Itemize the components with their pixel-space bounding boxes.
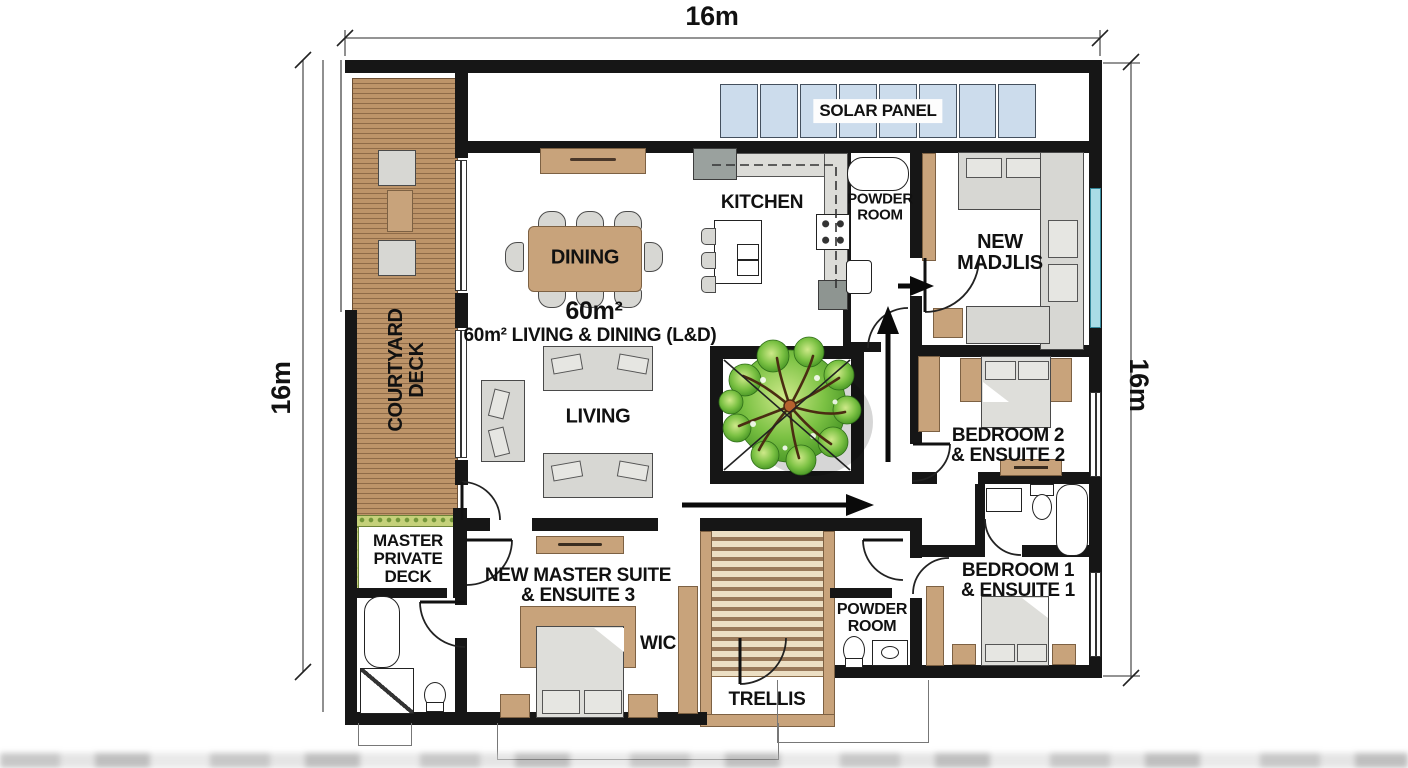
- bedroom2-label: BEDROOM 2 & ENSUITE 2: [951, 426, 1065, 466]
- sofa-cushion: [1048, 220, 1078, 258]
- new-master-suite-label: NEW MASTER SUITE & ENSUITE 3: [485, 566, 671, 606]
- wall-masterdeck-bottom: [345, 588, 447, 598]
- kitchen-base-cabinet: [818, 280, 848, 310]
- wall-greatroom-south-b: [532, 518, 658, 531]
- bedroom2-nightstand: [1048, 358, 1072, 402]
- bedroom1-wardrobe: [926, 586, 944, 666]
- new-madjlis-label: NEW MADJLIS: [957, 232, 1043, 274]
- wall-deck-right-c: [455, 460, 468, 485]
- bed-pillow: [1018, 361, 1049, 380]
- master-private-deck-label: MASTER PRIVATE DECK: [373, 532, 443, 586]
- sink-basin-icon: [881, 646, 899, 659]
- kitchen-label: KITCHEN: [721, 193, 803, 213]
- wall-ens3-vert-b: [455, 638, 467, 718]
- sofa-cushion: [966, 158, 1002, 178]
- cooktop: [816, 214, 850, 250]
- dining-chair: [644, 242, 663, 272]
- bedroom1-nightstand: [952, 644, 976, 665]
- bedroom1-east-window: [1090, 572, 1101, 657]
- bedroom2-wardrobe: [918, 356, 940, 432]
- console-detail: [558, 543, 602, 546]
- refrigerator: [693, 148, 737, 180]
- madjlis-ottoman: [933, 308, 963, 338]
- bathtub-icon: [364, 596, 400, 668]
- wall-greatroom-south-c: [700, 518, 912, 531]
- balcony-edge-line: [340, 60, 342, 312]
- master-nightstand: [628, 694, 658, 718]
- wall-bath-bed1-a: [912, 545, 985, 557]
- wall-bed2-bath-a: [912, 472, 937, 484]
- powder-room-top-label: POWDER ROOM: [847, 191, 913, 223]
- courtyard-deck-floor: [352, 78, 458, 520]
- dim-right-label: 16m: [1125, 358, 1153, 411]
- wall-left-mid: [345, 310, 357, 525]
- madjlis-door-panel: [922, 153, 936, 261]
- floor-plan: 16m 16m 16m SOLAR PANEL KITCHEN DINING 6…: [0, 0, 1408, 768]
- wall-masterdeck-right: [453, 508, 467, 598]
- solar-panel-label: SOLAR PANEL: [813, 99, 942, 123]
- dim-left-label: 16m: [267, 361, 295, 414]
- dining-sideboard-detail: [570, 158, 616, 161]
- wic-label: WIC: [640, 634, 676, 654]
- dining-chair: [505, 242, 524, 272]
- wall-ens3-vert-a: [455, 595, 467, 605]
- island-stool: [701, 276, 716, 293]
- deck-chair-1: [378, 150, 416, 186]
- dining-sideboard: [540, 148, 646, 174]
- bed-pillow: [542, 690, 580, 714]
- sink-icon: [986, 488, 1022, 512]
- solar-panel-cell: [998, 84, 1036, 138]
- master-deck-planting-top: [348, 515, 458, 527]
- dining-label: DINING: [551, 248, 619, 269]
- island-stool: [701, 252, 716, 269]
- wall-top: [345, 60, 1102, 73]
- sink-icon: [846, 260, 872, 294]
- island-stool: [701, 228, 716, 245]
- madjlis-sofa-bottom: [966, 306, 1050, 344]
- dresser-detail: [1014, 466, 1048, 469]
- wall-deck-right-a: [455, 73, 468, 158]
- toilet-base-icon: [845, 658, 863, 668]
- toilet-bowl-icon: [1032, 494, 1052, 520]
- area-value-label: 60m²: [565, 298, 622, 324]
- living-label: LIVING: [566, 407, 631, 428]
- area-caption-label: 60m² LIVING & DINING (L&D): [464, 326, 717, 346]
- bed-pillow: [985, 361, 1016, 380]
- courtyard-skylight-frame: [710, 346, 864, 484]
- shower-icon: [360, 668, 414, 714]
- island-sink: [737, 244, 759, 276]
- trellis-label: TRELLIS: [728, 690, 805, 710]
- wall-bottom-right: [835, 665, 1102, 678]
- toilet-base-icon: [426, 702, 444, 712]
- deck-chair-2: [378, 240, 416, 276]
- bathtub-icon: [847, 157, 909, 191]
- wic-wardrobe: [678, 586, 698, 714]
- dim-top-label: 16m: [685, 2, 738, 30]
- wall-powder2-top: [830, 588, 892, 598]
- bathtub-icon: [1056, 484, 1088, 556]
- bedroom2-east-window: [1090, 392, 1101, 477]
- solar-panel-cell: [959, 84, 997, 138]
- trellis-floor: [712, 531, 823, 676]
- sofa-cushion: [1048, 264, 1078, 302]
- bed-pillow: [985, 644, 1015, 662]
- courtyard-deck-label: COURTYARD DECK: [386, 308, 428, 431]
- step-outline: [358, 723, 412, 746]
- powder-room-bottom-label: POWDER ROOM: [837, 602, 907, 636]
- madjlis-east-glazing: [1090, 188, 1101, 328]
- bed-pillow: [584, 690, 622, 714]
- living-west-window-1: [455, 160, 467, 291]
- deck-table: [387, 190, 413, 232]
- trellis-post-left: [700, 531, 712, 727]
- solar-panel-cell: [720, 84, 758, 138]
- bedroom1-label: BEDROOM 1 & ENSUITE 1: [961, 561, 1075, 601]
- wall-wing-west-d: [910, 598, 922, 668]
- wall-deck-right-b: [455, 293, 468, 328]
- bedroom1-nightstand: [1052, 644, 1076, 665]
- living-west-window-2: [455, 330, 467, 458]
- master-nightstand: [500, 694, 530, 718]
- sofa-cushion: [1006, 158, 1042, 178]
- bottom-blur-strip: [0, 753, 1408, 768]
- wall-left-low: [345, 525, 357, 725]
- bed-pillow: [1017, 644, 1047, 662]
- solar-panel-cell: [760, 84, 798, 138]
